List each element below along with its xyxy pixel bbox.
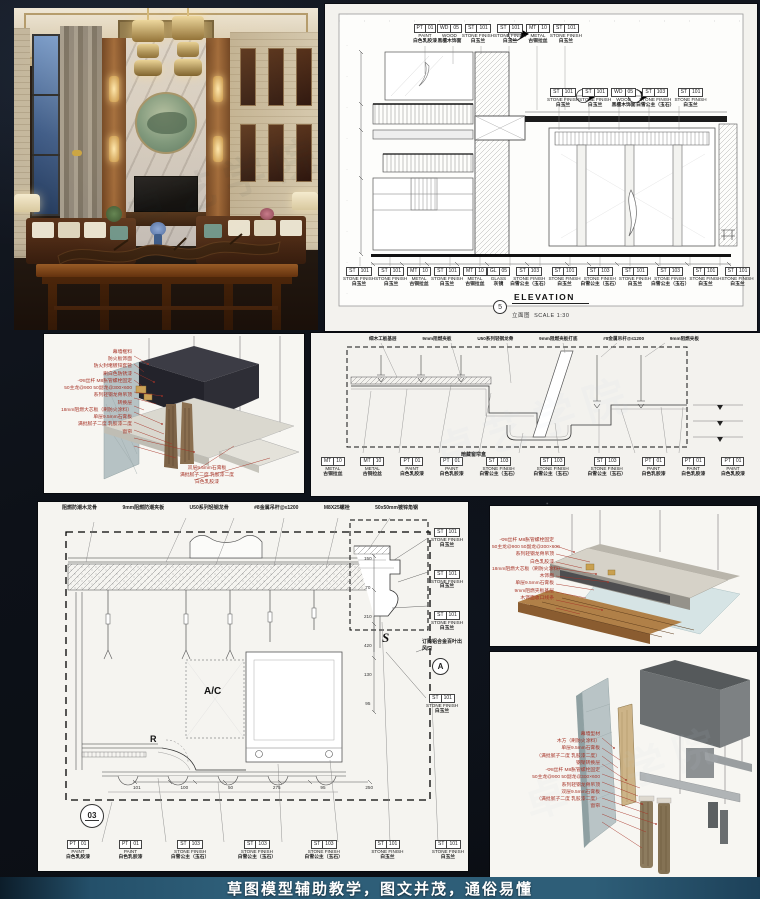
banner-text: 草图模型辅助教学，图文并茂，通俗易懂 [227, 878, 533, 899]
material-code-box: ST101 [435, 840, 461, 849]
annotation-label: -Φ8丝杆 M8胀管螺栓固定 [504, 768, 600, 774]
material-callout: ST101STONE FINISH白玉兰 [721, 267, 753, 288]
material-callout: ST101STONE FINISH白玉兰 [431, 611, 463, 632]
edge-3d-annotations: -Φ8丝杆 M8胀管螺栓固定50主龙@900 50副龙@300×600系列轻钢龙… [492, 538, 554, 602]
dimension-value: 95 [320, 785, 325, 790]
material-callout: ST101STONE FINISH白玉兰 [431, 570, 463, 591]
dimension-column: 1507021042013095 [364, 556, 372, 706]
material-code-box: ST103 [486, 457, 512, 466]
edge-3d-detail-panel: -Φ8丝杆 M8胀管螺栓固定50主龙@900 50副龙@300×600系列轻钢龙… [490, 506, 757, 646]
bottom-banner: 草图模型辅助教学，图文并茂，通俗易懂 [0, 877, 760, 899]
material-callout: PT01PAINT白色乳胶漆 [118, 840, 142, 861]
material-callout: ST101 STONE FINISH 白玉兰 [426, 694, 458, 715]
ceiling-3d-note: 双层9.5mm石膏板满批腻子二度 乳胶漆二度白色乳胶漆 [162, 466, 252, 487]
material-callout: ST103STONE FINISH白雪公主（玉石） [305, 840, 343, 861]
material-code-box: PT01 [440, 457, 463, 466]
material-callout: MT10METAL古铜拉丝 [463, 267, 487, 288]
detail-bubble-03: 03 [80, 804, 104, 828]
material-callout: WD05WOOD黑檀木饰面 [611, 88, 636, 109]
annotation-label: 幕墙框料 [46, 350, 132, 356]
material-code-box: ST101 [434, 611, 460, 620]
material-callout: MT10METAL古铜拉丝 [321, 457, 345, 478]
big-section-top-labels: 阻燃防潮木龙骨9mm阻燃防潮夹板U50系列轻钢龙骨#8金属吊杆@≤1200M8X… [62, 504, 418, 511]
material-code-box: ST101 [725, 267, 751, 276]
ac-label: A/C [204, 686, 221, 697]
material-code-box: ST101 [582, 88, 608, 97]
annotation-label: 刷白色防锈漆 [46, 372, 132, 378]
construction-label: 9mm阻燃夹板 [670, 336, 699, 342]
material-callout: ST103STONE FINISH白雪公主（玉石） [533, 457, 571, 478]
annotation-label: 9mm阻燃夹板基层 [492, 589, 554, 595]
material-callout: PT01PAINT白色乳胶漆 [400, 457, 424, 478]
material-code-box: MT10 [407, 267, 431, 276]
construction-label: 9mm阻燃防潮夹板 [122, 504, 164, 511]
annotation-label: 钢架转换层 [504, 761, 600, 767]
annotation-label: 双层9.5mm石膏板 [504, 790, 600, 796]
ceiling-section-panel: 细木工板基层9mm阻燃夹板U50系列轻钢龙骨9mm阻燃夹板打底#8金属吊杆@≤1… [311, 333, 760, 496]
material-code-box: ST101 [465, 24, 491, 33]
ceiling-3d-detail-panel: 幕墙框料防火板饰面防火封堵镀锌套管刷白色防锈漆-Φ8丝杆 M8胀管螺栓固定50主… [44, 334, 304, 493]
poster-page: 卓艺学院 卓艺学院 卓艺学院 [0, 0, 760, 899]
material-code-box: ST101 [678, 88, 704, 97]
material-code-box: ST101 [693, 267, 719, 276]
material-code-box: ST101 [434, 528, 460, 537]
material-callout: PT01PAINT白色乳胶漆 [413, 24, 437, 45]
dimension-row: 1011005027595250 [133, 785, 373, 790]
material-callout: ST101STONE FINISH白玉兰 [494, 24, 526, 45]
material-callout: ST101STONE FINISH白玉兰 [462, 24, 494, 45]
material-callout: ST103STONE FINISH白雪公主（玉石） [636, 88, 674, 109]
ceiling-3d-annotations: 幕墙框料防火板饰面防火封堵镀锌套管刷白色防锈漆-Φ8丝杆 M8胀管螺栓固定50主… [46, 350, 132, 436]
material-code-box: PT01 [400, 457, 423, 466]
material-callout: ST101STONE FINISH白玉兰 [375, 267, 407, 288]
big-section-bottom-callouts: PT01PAINT白色乳胶漆PT01PAINT白色乳胶漆ST103STONE F… [66, 840, 464, 861]
annotation-label: 白色乳胶漆 [492, 560, 554, 566]
material-callout: ST101STONE FINISH白玉兰 [343, 267, 375, 288]
material-code-box: ST101 [622, 267, 648, 276]
annotation-label: 单层9.5mm石膏板 [504, 746, 600, 752]
material-callout: PT01PAINT白色乳胶漆 [721, 457, 745, 478]
material-callout: ST101STONE FINISH白玉兰 [619, 267, 651, 288]
construction-label: U50系列轻钢龙骨 [190, 504, 229, 511]
elevation-drawing-panel: PT01PAINT白色乳胶漆WD05WOOD黑檀木饰面ST101STONE FI… [325, 4, 757, 331]
material-code-box: ST101 [346, 267, 372, 276]
big-section-panel: 阻燃防潮木龙骨9mm阻燃防潮夹板U50系列轻钢龙骨#8金属吊杆@≤1200M8X… [38, 502, 468, 871]
material-callout: MT10METAL古铜拉丝 [407, 267, 431, 288]
material-callout: ST103STONE FINISH白雪公主（玉石） [510, 267, 548, 288]
material-callout: PT01PAINT白色乳胶漆 [681, 457, 705, 478]
section-marker-a: A [432, 658, 449, 675]
material-code-box: ST101 [429, 694, 455, 703]
annotation-label: 单层9.5mm石膏板 [46, 415, 132, 421]
material-callout: ST101STONE FINISH白玉兰 [550, 24, 582, 45]
material-code-box: ST103 [657, 267, 683, 276]
material-callout: WD05WOOD黑檀木饰面 [437, 24, 462, 45]
material-callout: ST103STONE FINISH白雪公主（玉石） [171, 840, 209, 861]
material-code-box: MT10 [463, 267, 487, 276]
construction-label: 细木工板基层 [369, 336, 397, 342]
vent-label: 订购铝合金百叶出风口 [422, 638, 466, 652]
annotation-label: 系列轻钢龙骨吊顶 [492, 552, 554, 558]
material-callout: ST103STONE FINISH白雪公主（玉石） [581, 267, 619, 288]
material-code-box: WD05 [437, 24, 462, 33]
material-callout: ST101STONE FINISH白玉兰 [548, 267, 580, 288]
annotation-label: 木饰面收口线条 [492, 596, 554, 602]
material-code-box: PT01 [67, 840, 90, 849]
material-code-box: ST101 [553, 24, 579, 33]
material-code-box: WD05 [611, 88, 636, 97]
material-callout: ST101STONE FINISH白玉兰 [431, 528, 463, 549]
annotation-label: 系列轻钢龙骨吊顶 [504, 783, 600, 789]
material-code-box: ST101 [434, 267, 460, 276]
material-code-box: ST103 [587, 267, 613, 276]
material-callout: ST101STONE FINISH白玉兰 [689, 267, 721, 288]
detail-number-bubble: 5 [493, 300, 507, 314]
material-code-box: PT01 [721, 457, 744, 466]
dimension-value: 95 [365, 701, 370, 706]
annotation-label: 系列轻钢龙骨吊顶 [46, 393, 132, 399]
dimension-value: 101 [133, 785, 141, 790]
annotation-label: 双层9.5mm石膏板 [162, 466, 252, 472]
dimension-value: 250 [365, 785, 373, 790]
material-code-box: MT10 [526, 24, 550, 33]
construction-label: 阻燃防潮木龙骨 [62, 504, 97, 511]
living-room-photo-panel [14, 8, 318, 330]
material-code-box: PT01 [119, 840, 142, 849]
material-code-box: ST101 [552, 267, 578, 276]
elevation-title: ELEVATION [512, 292, 589, 304]
annotation-label: 18mm阻燃大芯板（刷防火涂料） [46, 408, 132, 414]
annotation-label: 木方（刷防火涂料） [504, 739, 600, 745]
construction-label: 50x50mm镀锌角钢 [375, 504, 418, 511]
material-code-box: ST101 [378, 267, 404, 276]
material-callout: PT01PAINT白色乳胶漆 [66, 840, 90, 861]
material-callout: ST101STONE FINISH白玉兰 [431, 267, 463, 288]
annotation-label: 防火板饰面 [46, 357, 132, 363]
dimension-value: 420 [364, 643, 372, 648]
dimension-value: 50 [228, 785, 233, 790]
material-code-box: MT10 [321, 457, 345, 466]
annotation-label: 窗帘 [504, 804, 600, 810]
dimension-value: 130 [364, 672, 372, 677]
material-code-box: ST103 [177, 840, 203, 849]
annotation-label: -Φ8丝杆 M8胀管螺栓固定 [492, 538, 554, 544]
material-callout: ST103STONE FINISH白雪公主（玉石） [238, 840, 276, 861]
annotation-label: （满批腻子二度 乳胶漆二度） [504, 754, 600, 760]
annotation-label: 单层9.5mm石膏板 [492, 581, 554, 587]
section-top-labels: 细木工板基层9mm阻燃夹板U50系列轻钢龙骨9mm阻燃夹板打底#8金属吊杆@≤1… [369, 336, 699, 342]
material-code-box: GL05 [487, 267, 510, 276]
material-code-box: ST101 [497, 24, 523, 33]
material-code-box: ST103 [594, 457, 620, 466]
dimension-value: 275 [273, 785, 281, 790]
material-code-box: PT01 [682, 457, 705, 466]
construction-label: U50系列轻钢龙骨 [477, 336, 513, 342]
dimension-value: 210 [364, 614, 372, 619]
material-code-box: ST101 [434, 570, 460, 579]
r-label: R [150, 734, 157, 744]
dimension-value: 70 [365, 585, 370, 590]
material-code-box: ST101 [550, 88, 576, 97]
annotation-label: （满批腻子二度 乳胶漆二度） [504, 797, 600, 803]
material-callout: PT01PAINT白色乳胶漆 [642, 457, 666, 478]
annotation-label: 50主龙@900 50副龙@300×600 [492, 545, 554, 551]
annotation-label: 木饰面 [492, 574, 554, 580]
dimension-value: 100 [180, 785, 188, 790]
elevation-top-callouts: PT01PAINT白色乳胶漆WD05WOOD黑檀木饰面ST101STONE FI… [413, 24, 581, 45]
annotation-label: 满批腻子二度 乳胶漆二度 [46, 422, 132, 428]
construction-label: M8X25螺栓 [324, 504, 350, 511]
construction-label: #8金属吊杆@≤1200 [254, 504, 298, 511]
warm-glow [14, 8, 318, 330]
construction-label: #8金属吊杆@≤1200 [603, 336, 644, 342]
material-callout: MT10METAL古铜拉丝 [526, 24, 550, 45]
material-code-box: ST103 [516, 267, 542, 276]
material-callout: PT01PAINT白色乳胶漆 [440, 457, 464, 478]
annotation-label: 50主龙@900 50副龙@300×600 [46, 386, 132, 392]
annotation-label: 窗帘 [46, 430, 132, 436]
construction-label: 9mm阻燃夹板 [422, 336, 451, 342]
s-label: S [382, 630, 389, 646]
material-code-box: PT01 [414, 24, 437, 33]
material-callout: MT10METAL古铜拉丝 [360, 457, 384, 478]
wall-3d-annotations: 幕墙型材木方（刷防火涂料）单层9.5mm石膏板（满批腻子二度 乳胶漆二度）钢架转… [504, 732, 600, 811]
material-code-box: ST103 [311, 840, 337, 849]
annotation-label: 18mm阻燃大芯板（刷防火涂料） [492, 567, 554, 573]
material-code-box: ST103 [244, 840, 270, 849]
construction-label: 9mm阻燃夹板打底 [539, 336, 577, 342]
material-code-box: MT10 [360, 457, 384, 466]
material-code-box: ST103 [540, 457, 566, 466]
material-callout: ST101STONE FINISH白玉兰 [371, 840, 403, 861]
annotation-label: 幕墙型材 [504, 732, 600, 738]
material-callout: ST101STONE FINISH白玉兰 [547, 88, 579, 109]
wall-3d-detail-panel: 幕墙型材木方（刷防火涂料）单层9.5mm石膏板（满批腻子二度 乳胶漆二度）钢架转… [490, 652, 757, 878]
dimension-value: 150 [364, 556, 372, 561]
annotation-label: -Φ8丝杆 M8胀管螺栓固定 [46, 379, 132, 385]
material-code-box: ST103 [642, 88, 668, 97]
material-callout: ST101STONE FINISH白玉兰 [579, 88, 611, 109]
elevation-bottom-callouts: ST101STONE FINISH白玉兰ST101STONE FINISH白玉兰… [343, 267, 739, 288]
material-callout: ST101STONE FINISH白玉兰 [432, 840, 464, 861]
material-code-box: PT01 [642, 457, 665, 466]
elevation-title-block: 5 ELEVATION 立面图 SCALE 1:30 [325, 292, 757, 322]
right-material-callouts: ST101STONE FINISH白玉兰ST101STONE FINISH白玉兰… [426, 528, 468, 632]
material-callout: ST101STONE FINISH白玉兰 [674, 88, 706, 109]
material-callout: ST103STONE FINISH白雪公主（玉石） [479, 457, 517, 478]
material-callout: ST103STONE FINISH白雪公主（玉石） [588, 457, 626, 478]
elevation-mid-callouts: ST101STONE FINISH白玉兰ST101STONE FINISH白玉兰… [547, 88, 699, 109]
annotation-label: 满批腻子二度 乳胶漆二度 [162, 473, 252, 479]
annotation-label: 50主龙@900 50副龙@300×600 [504, 775, 600, 781]
section-bottom-callouts: MT10METAL古铜拉丝MT10METAL古铜拉丝PT01PAINT白色乳胶漆… [321, 457, 745, 478]
material-code-box: ST101 [375, 840, 401, 849]
annotation-label: 转换层 [46, 401, 132, 407]
annotation-label: 白色乳胶漆 [162, 480, 252, 486]
material-callout: GL05GLASS灰镜 [487, 267, 510, 288]
material-callout: ST103STONE FINISH白雪公主（玉石） [651, 267, 689, 288]
annotation-label: 防火封堵镀锌套管 [46, 364, 132, 370]
elevation-subtitle: 立面图 SCALE 1:30 [512, 313, 569, 319]
